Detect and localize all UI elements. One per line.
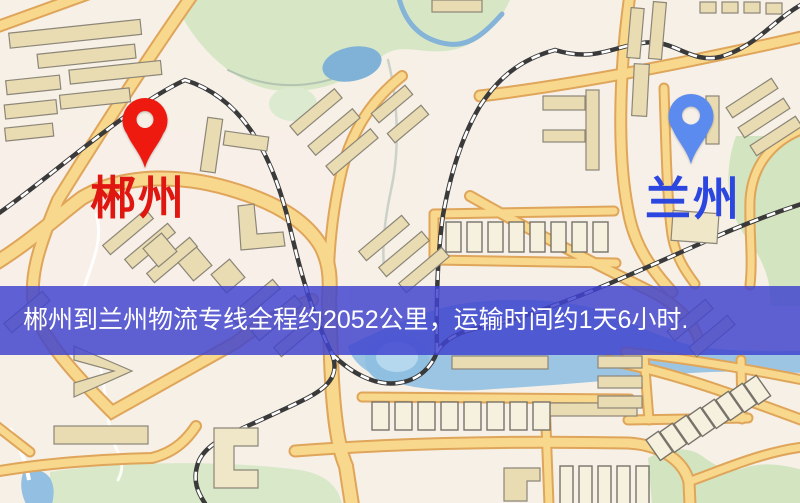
destination-pin-icon <box>661 92 721 172</box>
banner-text: 郴州到兰州物流专线全程约2052公里，运输时间约1天6小时. <box>0 286 800 355</box>
info-banner: 郴州到兰州物流专线全程约2052公里，运输时间约1天6小时. <box>0 286 800 355</box>
origin-pin-icon <box>115 96 175 176</box>
basemap-image <box>0 0 800 503</box>
destination-city-label: 兰州 <box>608 177 778 223</box>
map-canvas: 郴州到兰州物流专线全程约2052公里，运输时间约1天6小时. 郴州 兰州 <box>0 0 800 503</box>
origin-city-label: 郴州 <box>53 176 223 222</box>
